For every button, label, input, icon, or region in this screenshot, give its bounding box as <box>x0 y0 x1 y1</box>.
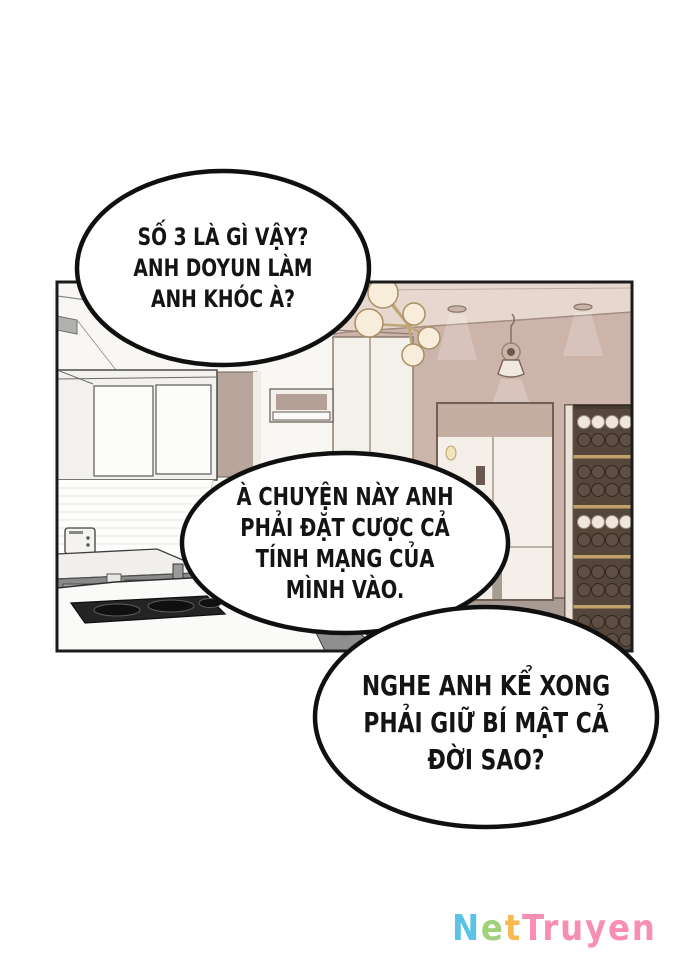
watermark-letter: e <box>608 908 632 949</box>
dialogue-line: PHẢI GIỮ BÍ MẬT CẢ <box>363 704 608 741</box>
burner <box>94 604 140 616</box>
fridge-top-panel <box>437 403 553 437</box>
dialogue-line: ANH KHÓC À? <box>151 284 295 315</box>
tall-cabinet-body <box>333 337 413 469</box>
dialogue-line: MÌNH VÀO. <box>286 574 405 605</box>
rack-shelf <box>573 555 631 559</box>
watermark-letter: u <box>560 908 585 949</box>
watermark: NetTruyen <box>452 908 657 949</box>
tall-cabinet <box>333 330 413 469</box>
sconce-shade <box>498 360 524 377</box>
rack-shelf <box>573 505 631 509</box>
toaster-knob <box>86 543 89 546</box>
rack-shelf <box>573 605 631 609</box>
dialogue-line: TÍNH MẠNG CỦA <box>256 543 435 574</box>
toaster-slot <box>69 531 83 534</box>
shelf-interior <box>276 394 327 410</box>
ceiling-light-oval <box>574 304 592 310</box>
toaster <box>65 528 95 554</box>
speech-bubble-1-text: SỐ 3 LÀ GÌ VẬY? ANH DOYUN LÀM ANH KHÓC À… <box>109 171 337 365</box>
shelf-lip <box>273 412 330 420</box>
cabinet-door <box>156 385 211 474</box>
watermark-letter: e <box>481 908 505 949</box>
toaster-knob <box>86 536 89 539</box>
speech-bubble-2-text: À CHUYỆN NÀY ANH PHẢI ĐẶT CƯỢC CẢ TÍNH M… <box>218 454 472 632</box>
cabinet-door <box>94 386 153 476</box>
watermark-letter: y <box>585 908 608 949</box>
sconce-hub <box>507 348 515 356</box>
watermark-letter: N <box>452 908 481 949</box>
door-handle <box>476 466 485 485</box>
rack-shelf <box>573 455 631 459</box>
dialogue-line: À CHUYỆN NÀY ANH <box>236 481 453 512</box>
speech-bubble-3-text: NGHE ANH KỂ XONG PHẢI GIỮ BÍ MẬT CẢ ĐỜI … <box>353 612 620 832</box>
watermark-letter: n <box>632 908 657 949</box>
dialogue-line: ANH DOYUN LÀM <box>133 253 312 284</box>
kettle <box>173 564 183 580</box>
rack-left-post <box>565 405 573 643</box>
dialogue-line: SỐ 3 LÀ GÌ VẬY? <box>138 222 309 253</box>
dialogue-line: PHẢI ĐẶT CƯỢC CẢ <box>240 512 449 543</box>
ceiling-light-oval <box>448 306 466 312</box>
watermark-letter: r <box>542 908 560 949</box>
watermark-letter: t <box>505 908 522 949</box>
watermark-letter: T <box>522 908 542 949</box>
dialogue-line: NGHE ANH KỂ XONG <box>362 667 610 704</box>
comic-page: SỐ 3 LÀ GÌ VẬY? ANH DOYUN LÀM ANH KHÓC À… <box>0 0 690 958</box>
dialogue-line: ĐỜI SAO? <box>428 741 545 778</box>
burner <box>148 600 194 612</box>
